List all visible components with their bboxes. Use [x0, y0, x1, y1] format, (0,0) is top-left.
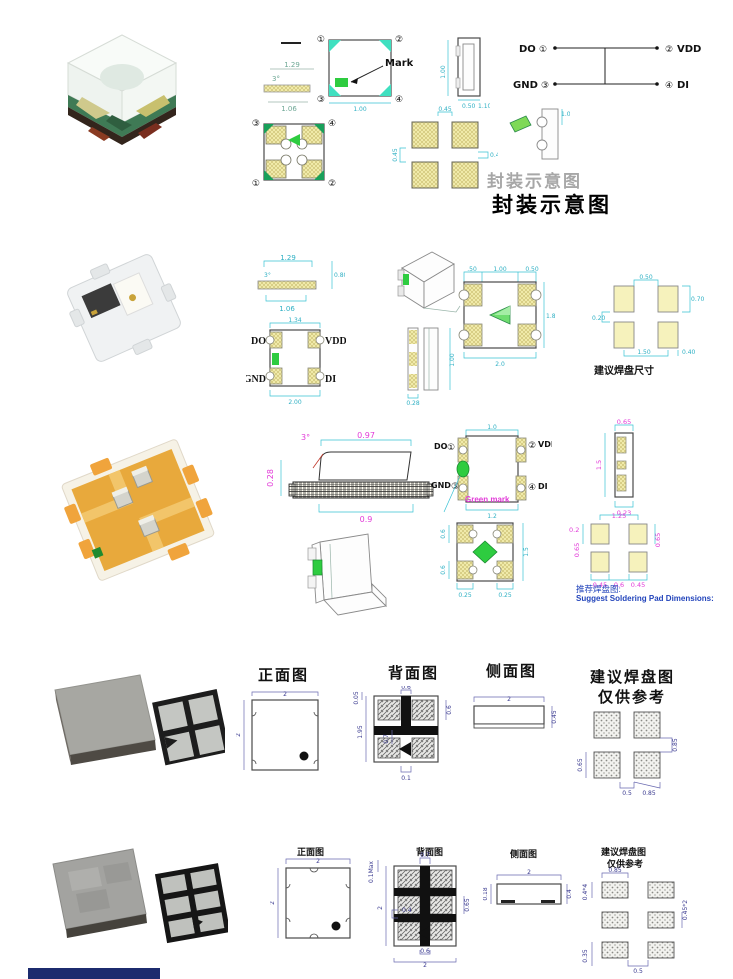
dim-p02: 0.2 [569, 526, 579, 534]
dim-p10: 1.0 [561, 111, 570, 118]
row2-top-view-drawing: .50 1.00 0.50 1.8 2.0 [450, 266, 555, 384]
pin1-dot [332, 922, 341, 931]
pin-di-label: DI [538, 482, 548, 491]
row4-front-view-drawing: 2 2 [236, 690, 334, 782]
dim-134: 1.34 [288, 317, 302, 324]
row4-back-view-drawing: 0.05 0.6 1.95 0.7 0.1 0.6 [352, 686, 462, 786]
row5-pad-layout-drawing: 0.4*4 0.85 0.45*2 0.35 0.5 [576, 866, 708, 974]
dim-129: 1.29 [280, 255, 296, 262]
pin-1: ① [317, 35, 325, 45]
pin-3: ③ [317, 95, 325, 105]
dim-3deg: 3° [272, 75, 280, 83]
pin-2: ② [528, 441, 536, 451]
row4-side-view-drawing: 2 0.45 [460, 692, 558, 744]
pin-2: ② [395, 35, 403, 45]
pin-do-num: ① [539, 45, 547, 55]
dim-bk01max: 0.1Max [368, 861, 375, 883]
pin-vdd-label: VDD [538, 440, 552, 449]
pin-3: ③ [252, 119, 260, 129]
dim-pd05: 0.5 [622, 790, 632, 796]
row3-pad-caption-en: Suggest Soldering Pad Dimensions: [576, 594, 714, 603]
datasheet-page: 1.29 3° 1.06 Mark ① ② ③ ④ 1.00 1.00 0.50… [0, 0, 733, 979]
row4-back-caption: 背面图 [388, 662, 439, 683]
row5-front-view-drawing: 2 2 [270, 856, 362, 954]
dim-p125: 1.25 [612, 512, 626, 520]
row1-bottom-view-drawing: ③ ④ ① ② [246, 112, 346, 194]
dim-bk04: 0.4 [402, 907, 412, 914]
dim-bk005: 0.05 [353, 691, 360, 705]
pin-4: ④ [328, 119, 336, 129]
row3-pad-layout-drawing: 1.25 0.2 0.65 0.65 0.45 0.6 0.45 [563, 510, 675, 588]
dim-p040: 0.40 [682, 349, 696, 356]
dim-f2l: 2 [236, 733, 242, 737]
pin-gnd-label: GND [513, 80, 538, 91]
dim-028: 0.28 [266, 469, 275, 487]
pin1-dot [300, 752, 309, 761]
dim-bk06r: 0.6 [446, 705, 453, 715]
dim-p065r: 0.65 [654, 533, 662, 547]
pin-di-label: DI [325, 374, 336, 385]
pin-gnd-num: ③ [541, 81, 549, 91]
dim-pd085b: 0.85 [642, 790, 656, 796]
row2-pad-caption: 建议焊盘尺寸 [594, 362, 654, 377]
dim-t10: 1.0 [487, 424, 497, 431]
pin-vdd-label: VDD [677, 44, 701, 55]
dim-129: 1.29 [284, 61, 300, 69]
row2-stack-dims: 1.29 3° 1.06 0.80 [250, 255, 345, 313]
pin-do-label: DO [434, 442, 448, 451]
dim-bl06a: 0.6 [440, 529, 447, 539]
dim-p04r: 0.4 [490, 152, 498, 159]
dim-bk2b: 2 [423, 962, 427, 968]
dim-f2l: 2 [270, 901, 276, 905]
dim-bk07: 0.7 [383, 734, 390, 744]
dim-p045b: 0.45 [631, 581, 645, 588]
dim-pd085: 0.85 [608, 867, 622, 874]
pin-1: ① [447, 443, 455, 453]
dim-sd04: 0.4 [566, 889, 573, 899]
row4-pad-layout-drawing: 0.85 0.65 0.5 0.85 [570, 704, 692, 796]
green-oval-mark [457, 461, 469, 477]
dim-p150: 1.50 [637, 349, 651, 356]
row5-back-view-drawing: 0.1Max 0.7 2 0.4 0.6 2 0.65 [366, 850, 484, 968]
green-mark [335, 78, 348, 87]
row3-top-view-pinout-drawing: 1.0 DO ① ② VDD GND ③ ④ DI 1.2 [430, 424, 552, 522]
dim-pd035: 0.35 [582, 949, 589, 963]
row1-pad-layout-drawing: 0.45 0.45 0.4 [390, 106, 498, 201]
row4-side-caption: 侧面图 [486, 660, 537, 681]
dim-h100: 1.00 [440, 65, 447, 79]
dim-bk06: 0.6 [420, 948, 430, 955]
dim-pd0452: 0.45*2 [682, 900, 689, 920]
pin-4: ④ [395, 95, 403, 105]
dim-sd018: 0.18 [483, 887, 489, 901]
row3-photo-orange-package [50, 432, 225, 597]
dim-106: 1.06 [279, 305, 295, 313]
row1-tick-line [281, 42, 301, 44]
row1-side-view-drawing: 1.00 0.50 1.10 [438, 30, 490, 110]
pin-1: ① [252, 179, 260, 189]
dim-r18: 1.8 [546, 313, 555, 320]
dim-bk195: 1.95 [357, 725, 364, 739]
dim-pd044: 0.4*4 [582, 884, 589, 901]
dim-br15: 1.5 [523, 547, 530, 557]
dim-w100: 1.00 [353, 106, 367, 112]
row4-pad-caption: 建议焊盘图 [590, 666, 675, 687]
row1-photo-clear-package [52, 15, 192, 180]
dim-f2t: 2 [316, 858, 320, 865]
dim-080: 0.80 [334, 272, 345, 279]
dim-bk07: 0.7 [420, 852, 430, 859]
mark-label: Mark [385, 58, 413, 69]
row4-front-caption: 正面图 [258, 664, 309, 685]
dim-sd2: 2 [527, 869, 531, 876]
dim-p020: 0.20 [592, 315, 606, 322]
green-parallelogram-mark [510, 116, 531, 132]
dim-p070: 0.70 [691, 296, 705, 303]
dim-p045l: 0.45 [392, 148, 399, 162]
dim-p065l: 0.65 [573, 543, 581, 557]
green-mark [403, 274, 409, 285]
dim-sd2: 2 [507, 696, 511, 703]
dim-3deg: 3° [301, 433, 310, 442]
pin-2: ② [328, 179, 336, 189]
row3-side-view-drawing: 0.65 1.5 0.23 [593, 419, 651, 517]
pin-vdd-label: VDD [325, 336, 346, 347]
dim-pd05: 0.5 [633, 968, 643, 974]
pin-4: ④ [528, 483, 536, 493]
page-bottom-strip [28, 968, 160, 979]
row3-bottom-view-drawing: 0.6 0.6 1.5 0.25 0.25 [433, 513, 541, 601]
row1-mark-and-pad-detail: 1.0 [502, 103, 570, 171]
row5-photo-gray-packages [28, 822, 228, 957]
pin-di-label: DI [677, 80, 689, 91]
pin-do-label: DO [519, 44, 536, 55]
dim-pd085r: 0.85 [672, 738, 679, 752]
dim-b20: 2.0 [495, 361, 505, 368]
dim-pd065: 0.65 [577, 758, 584, 772]
green-mark-label: Green mark [465, 495, 509, 504]
dim-p045t: 0.45 [438, 106, 452, 113]
dim-bb025a: 0.25 [458, 592, 472, 599]
dim-t050a: .50 [467, 266, 477, 273]
pin-do-label: DO [251, 336, 266, 347]
row2-pad-layout-drawing: 0.50 0.20 0.70 1.50 0.40 [590, 272, 708, 360]
green-mark [272, 353, 279, 365]
row1-pin-circuit: DO ① ② VDD GND ③ ④ DI [505, 30, 720, 102]
row1-top-view-drawing: Mark ① ② ③ ④ 1.00 [313, 30, 413, 112]
pin-vdd-num: ② [665, 45, 673, 55]
green-mark [313, 560, 322, 575]
dim-sv15: 1.5 [595, 460, 603, 470]
row5-side-view-drawing: 2 0.18 0.4 [483, 856, 575, 928]
dim-097: 0.97 [357, 431, 375, 440]
pin-gnd-label: GND [431, 481, 451, 490]
pin-di-num: ④ [665, 81, 673, 91]
row2-photo-white-package [52, 246, 197, 374]
dim-t100: 1.00 [493, 266, 507, 273]
dim-bk06t: 0.6 [401, 686, 411, 691]
row2-package-pinout-drawing: 1.34 DO GND VDD DI 2.00 [246, 316, 346, 406]
dim-028: 0.28 [406, 400, 420, 406]
dim-bb025b: 0.25 [498, 592, 512, 599]
dim-bk01: 0.1 [401, 775, 411, 782]
dim-bk065: 0.65 [464, 898, 471, 912]
dim-bl06b: 0.6 [440, 565, 447, 575]
pin-gnd-label: GND [246, 374, 266, 385]
pkg-schematic-caption: 封装示意图 [492, 189, 612, 219]
dim-sd045: 0.45 [551, 710, 558, 724]
dim-bk2l: 2 [377, 906, 384, 910]
row3-profile-drawing: 3° 0.97 0.28 0.9 [263, 424, 435, 524]
dim-200: 2.00 [288, 399, 302, 406]
dim-3deg: 3° [264, 272, 271, 279]
dim-sv065: 0.65 [617, 419, 631, 426]
dim-t050b: 0.50 [525, 266, 539, 273]
row3-3d-outline-drawing [288, 518, 396, 630]
dim-p050: 0.50 [639, 274, 653, 281]
dim-f2t: 2 [283, 691, 287, 698]
row4-photo-gray-packages [30, 655, 225, 783]
